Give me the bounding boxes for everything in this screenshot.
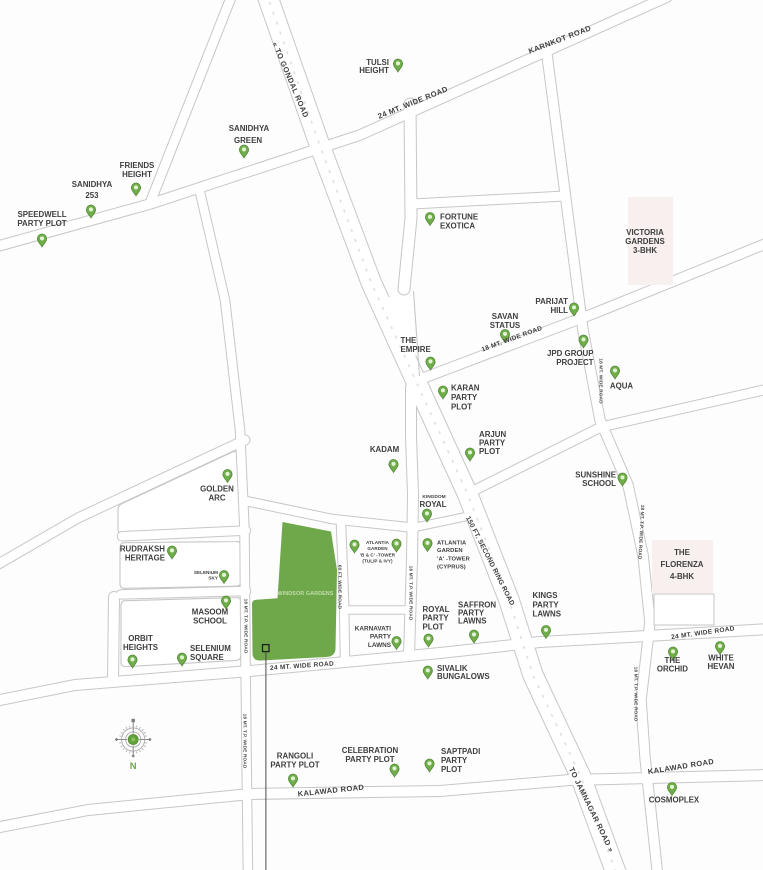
svg-text:HILL: HILL [550,306,568,315]
svg-text:PLOT: PLOT [479,447,500,456]
svg-text:THE: THE [674,548,690,557]
svg-text:KINGDOM: KINGDOM [422,494,445,500]
svg-text:KARNAVATI: KARNAVATI [355,625,391,632]
svg-text:PARTY: PARTY [423,614,450,623]
svg-text:18 MT. WIDE ROAD: 18 MT. WIDE ROAD [598,358,604,404]
svg-text:PARIJAT: PARIJAT [535,297,568,306]
svg-text:FRIENDS: FRIENDS [120,161,155,170]
svg-text:LAWNS: LAWNS [458,617,487,626]
svg-text:ROYAL: ROYAL [420,500,447,509]
svg-text:SELENIUM: SELENIUM [190,644,231,653]
svg-text:18 MT. T.P. WIDE ROAD: 18 MT. T.P. WIDE ROAD [242,714,248,769]
svg-text:ORBIT: ORBIT [128,634,153,643]
svg-text:BUNGALOWS: BUNGALOWS [437,672,490,681]
svg-text:RUDRAKSH: RUDRAKSH [120,545,165,554]
svg-text:PARTY: PARTY [533,600,560,609]
svg-text:GREEN: GREEN [234,136,262,145]
svg-text:253: 253 [85,191,99,200]
svg-text:KARAN: KARAN [451,384,480,393]
svg-text:GARDEN: GARDEN [367,546,388,551]
svg-text:SAVAN: SAVAN [492,312,519,321]
svg-text:ARC: ARC [208,494,225,503]
svg-text:PARTY: PARTY [441,756,468,765]
svg-text:SCHOOL: SCHOOL [582,479,616,488]
svg-text:SPEEDWELL: SPEEDWELL [17,210,66,219]
svg-text:SANIDHYA: SANIDHYA [72,180,113,189]
svg-text:'B & C' -TOWER: 'B & C' -TOWER [360,553,396,558]
svg-text:LAWNS: LAWNS [533,610,562,619]
svg-text:PLOT: PLOT [441,765,462,774]
svg-text:GARDEN: GARDEN [437,548,463,554]
svg-text:3-BHK: 3-BHK [633,246,657,255]
svg-text:PARTY PLOT: PARTY PLOT [345,755,394,764]
svg-text:VICTORIA: VICTORIA [626,228,664,237]
svg-text:KINGS: KINGS [533,591,558,600]
svg-text:EXOTICA: EXOTICA [440,221,475,230]
svg-text:PARTY: PARTY [451,393,478,402]
svg-text:HERITAGE: HERITAGE [125,554,165,563]
svg-text:LAWNS: LAWNS [368,642,392,649]
svg-text:(TULIP & IVY): (TULIP & IVY) [362,559,393,564]
svg-text:'A' -TOWER: 'A' -TOWER [437,557,471,563]
svg-text:GARDENS: GARDENS [625,237,664,246]
svg-text:HEIGHTS: HEIGHTS [123,643,158,652]
svg-text:SANIDHYA: SANIDHYA [229,124,270,133]
svg-text:SQUARE: SQUARE [190,653,224,662]
svg-text:18 MT. T.P. WIDE ROAD: 18 MT. T.P. WIDE ROAD [408,566,414,621]
svg-text:SAPTPADI: SAPTPADI [441,747,480,756]
svg-text:COSMOPLEX: COSMOPLEX [649,796,700,805]
svg-text:18 MT. T.P. WIDE ROAD: 18 MT. T.P. WIDE ROAD [633,667,639,722]
svg-text:THE: THE [401,336,417,345]
svg-text:HEVAN: HEVAN [707,662,734,671]
svg-text:RANGOLI: RANGOLI [277,752,313,761]
svg-text:PARTY PLOT: PARTY PLOT [17,219,66,228]
svg-text:SELENIUM: SELENIUM [194,570,218,575]
svg-text:ORCHID: ORCHID [657,665,688,674]
svg-text:SKY: SKY [208,576,218,581]
svg-text:PARTY: PARTY [370,634,392,641]
svg-text:CELEBRATION: CELEBRATION [342,746,399,755]
svg-text:SCHOOL: SCHOOL [193,617,227,626]
svg-text:N: N [130,761,137,772]
svg-text:ATLANTIA: ATLANTIA [437,541,467,547]
svg-text:60 FT. WIDE ROAD: 60 FT. WIDE ROAD [337,565,343,610]
svg-text:EMPIRE: EMPIRE [401,345,431,354]
svg-text:PROJECT: PROJECT [556,358,593,367]
svg-text:ROYAL: ROYAL [423,605,450,614]
svg-text:PLOT: PLOT [451,403,472,412]
svg-text:(CYPRUS): (CYPRUS) [437,565,466,571]
svg-text:WINDSOR GARDENS: WINDSOR GARDENS [277,591,333,597]
svg-text:MASOOM: MASOOM [192,608,229,617]
svg-text:AQUA: AQUA [610,382,634,391]
svg-text:GOLDEN: GOLDEN [200,485,234,494]
svg-text:FORTUNE: FORTUNE [440,213,478,222]
svg-text:PLOT: PLOT [423,622,444,631]
svg-text:JPD GROUP: JPD GROUP [547,349,593,358]
svg-text:HEIGHT: HEIGHT [122,170,152,179]
svg-text:18 MT. T.P. WIDE ROAD: 18 MT. T.P. WIDE ROAD [243,599,249,654]
svg-text:ATLANTIA: ATLANTIA [366,540,390,545]
svg-text:PARTY PLOT: PARTY PLOT [270,761,319,770]
svg-text:KADAM: KADAM [370,445,400,454]
svg-text:4-BHK: 4-BHK [670,572,694,581]
svg-text:STATUS: STATUS [490,321,520,330]
svg-text:HEIGHT: HEIGHT [359,66,389,75]
svg-text:FLORENZA: FLORENZA [661,560,704,569]
